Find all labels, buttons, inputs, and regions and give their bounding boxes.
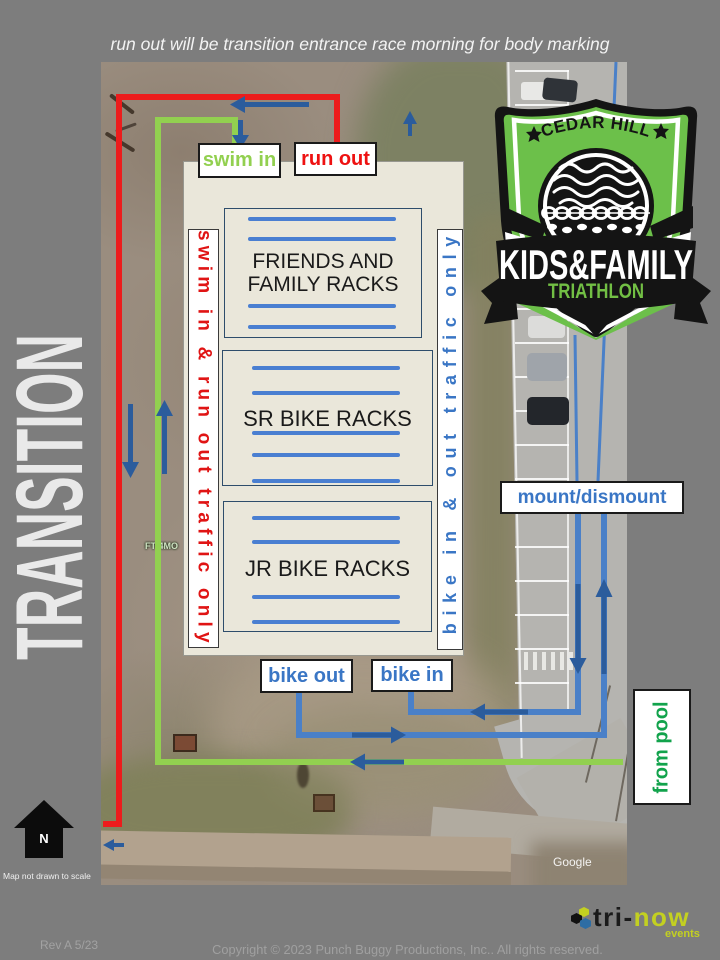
svg-text:TRIATHLON: TRIATHLON [548, 280, 644, 303]
svg-text:N: N [39, 831, 48, 846]
